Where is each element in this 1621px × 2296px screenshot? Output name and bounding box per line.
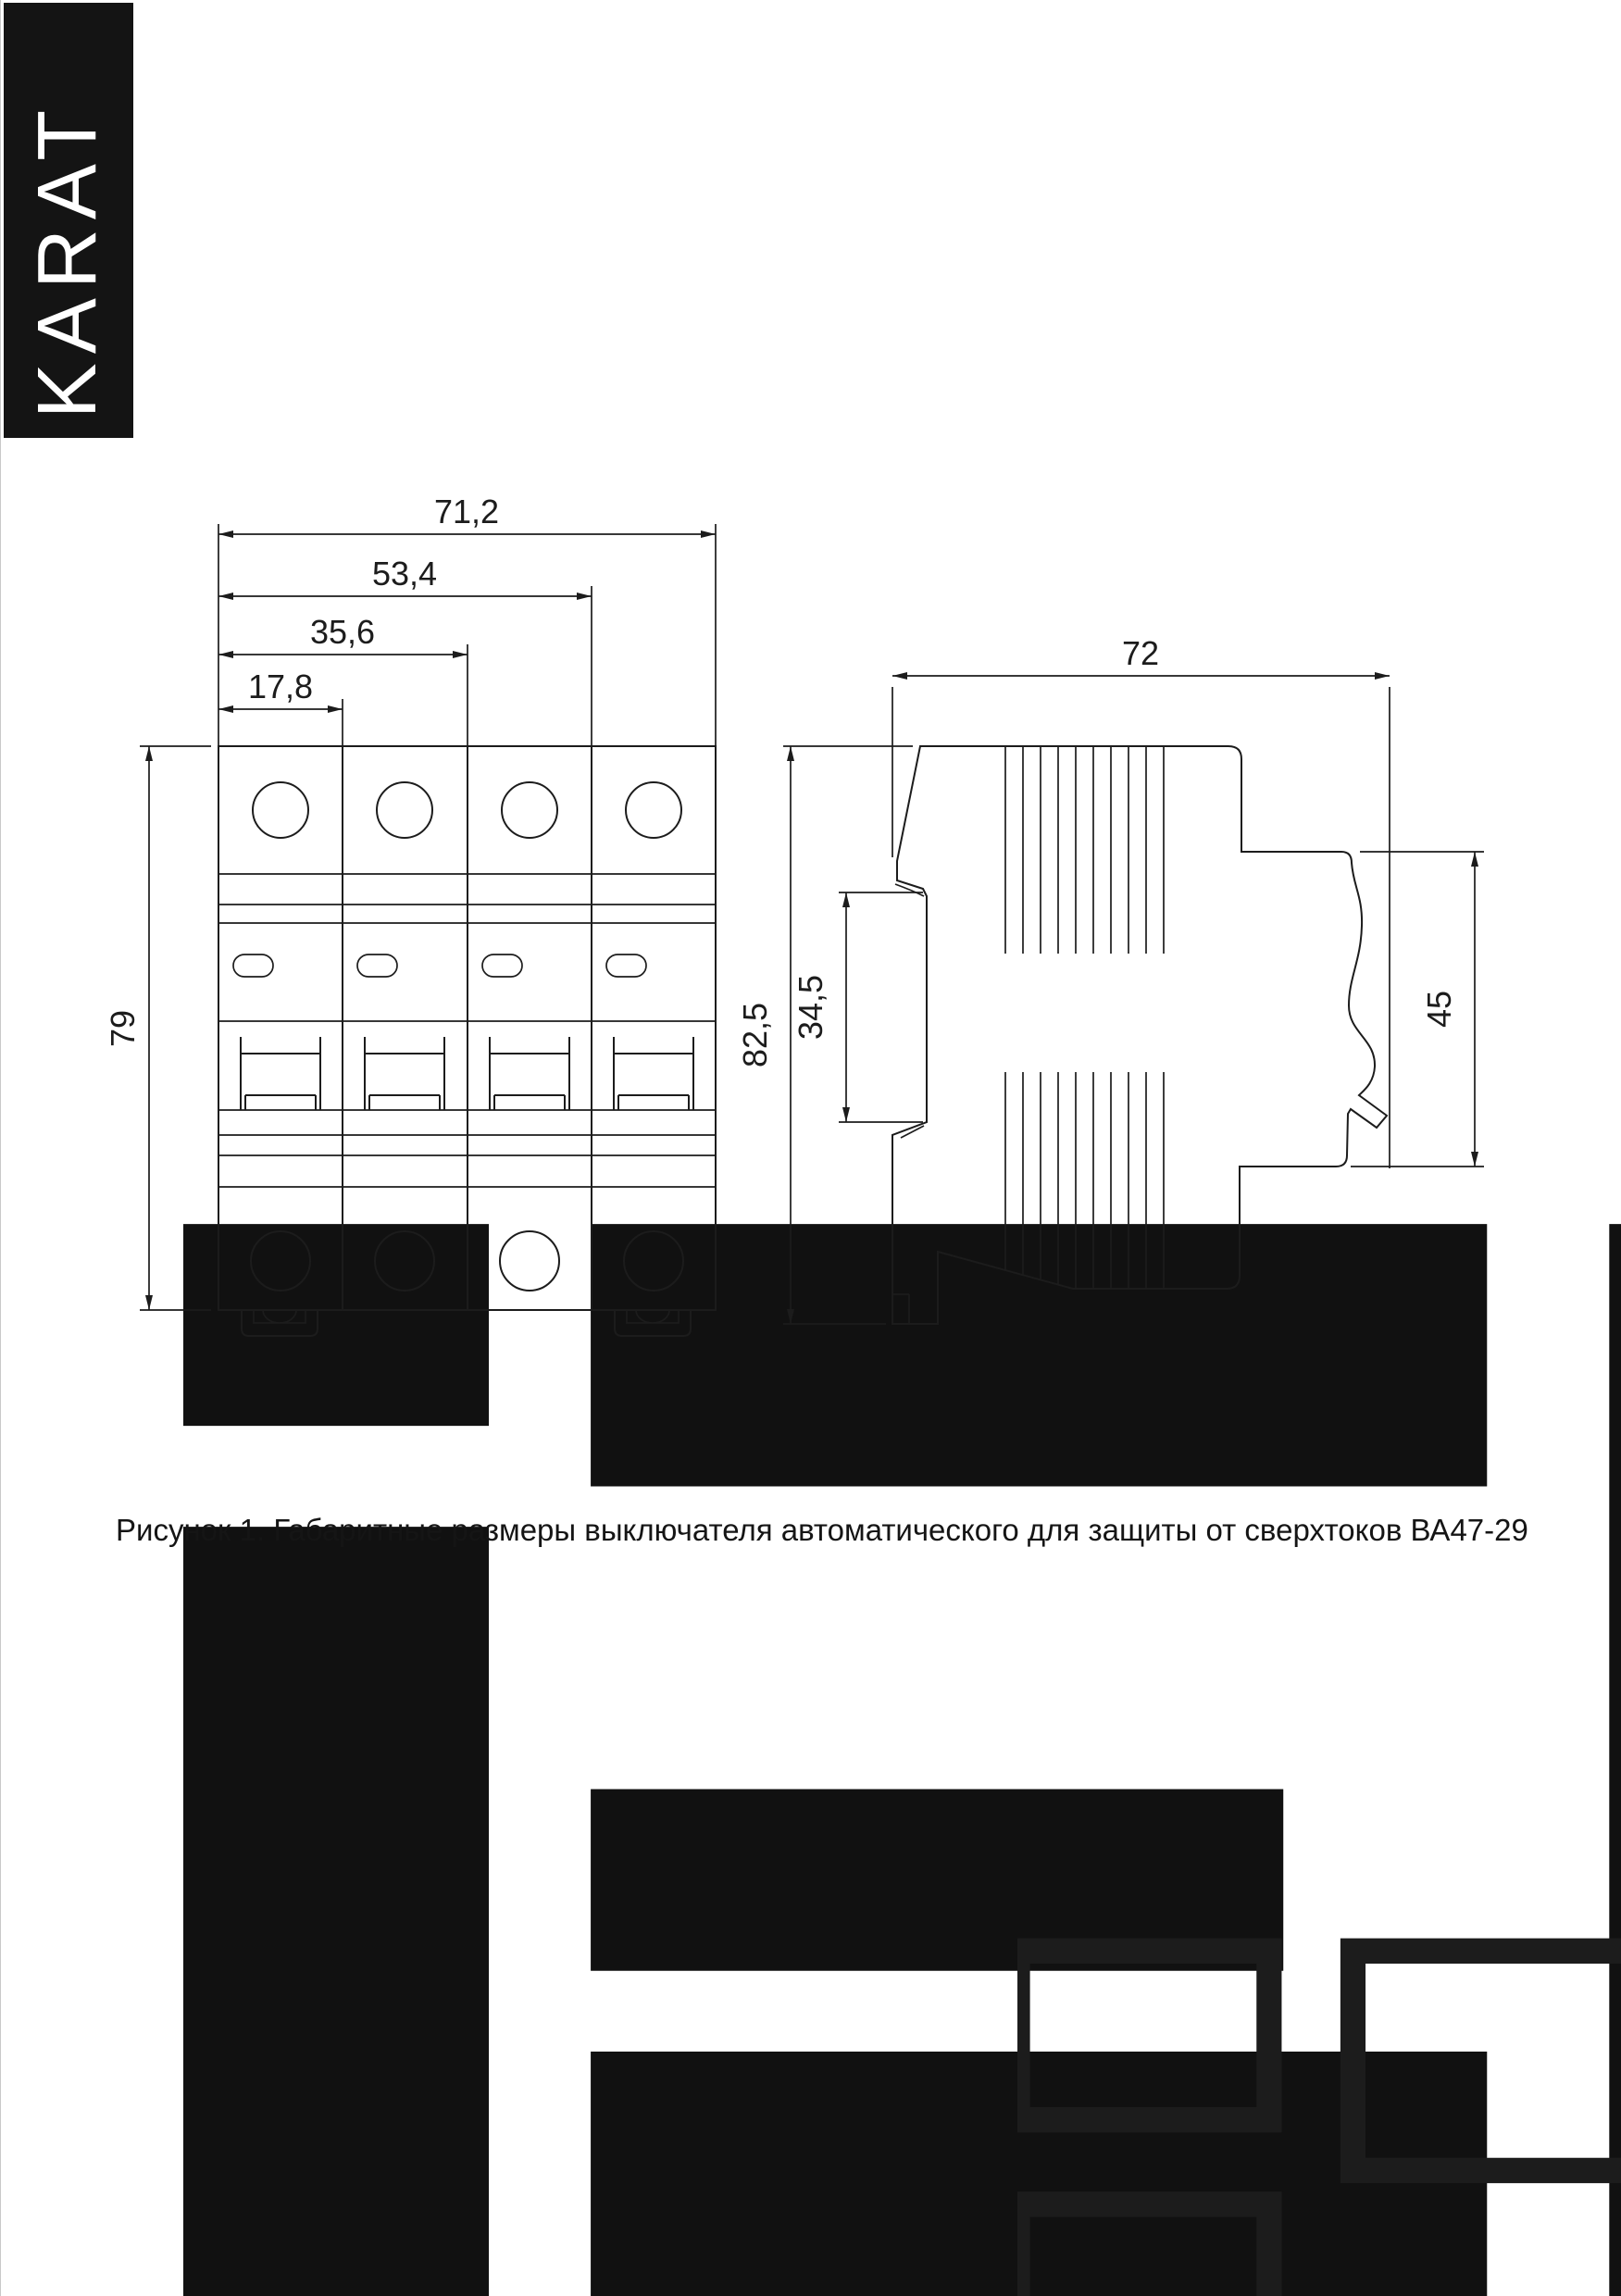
arrowheads: [145, 530, 716, 1310]
front-view: 71,2 53,4 35,6 17,8 79: [104, 493, 716, 1336]
dimension-lines: [149, 534, 716, 1310]
upper-ventilation-ribs: [1005, 746, 1164, 954]
dim-label-overall-width: 71,2: [434, 493, 499, 530]
dimensional-drawing: 71,2 53,4 35,6 17,8 79: [1, 0, 1621, 2296]
dim-label-two-modules: 35,6: [310, 613, 375, 651]
side-dimensions: 72 82,5 34,5 45: [736, 634, 1484, 1324]
extension-lines: [140, 524, 716, 1310]
dim-label-depth: 72: [1122, 634, 1159, 672]
dim-label-three-modules: 53,4: [372, 555, 437, 593]
dim-label-front-height: 79: [104, 1010, 142, 1047]
dim-label-one-module: 17,8: [248, 668, 313, 705]
document-page: KARAT: [0, 0, 1621, 2296]
iek-logo: [183, 1224, 1621, 2296]
dim-label-side-height: 82,5: [736, 1003, 774, 1067]
dim-label-din-channel: 34,5: [792, 975, 829, 1040]
figure-caption: Рисунок 1. Габаритные размеры выключател…: [116, 1513, 1528, 1548]
marking-windows: [233, 955, 646, 977]
dim-label-front-part: 45: [1420, 991, 1458, 1028]
